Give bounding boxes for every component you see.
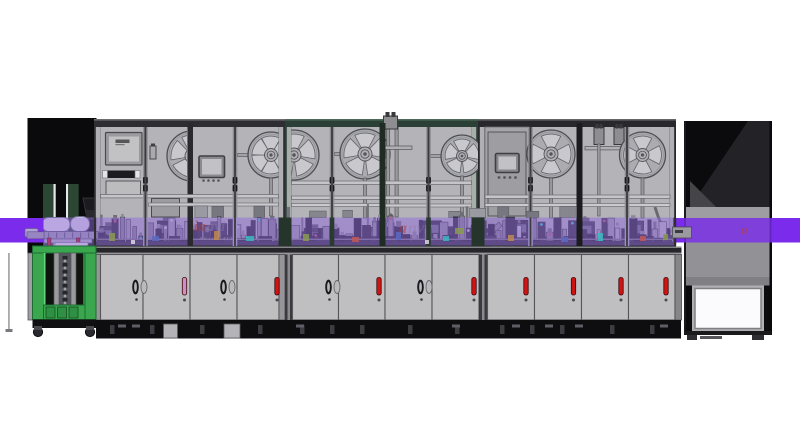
svg-text:a: a [741, 222, 748, 237]
svg-text:nvi: nvi [408, 220, 429, 237]
svg-text:ia: ia [194, 219, 206, 235]
